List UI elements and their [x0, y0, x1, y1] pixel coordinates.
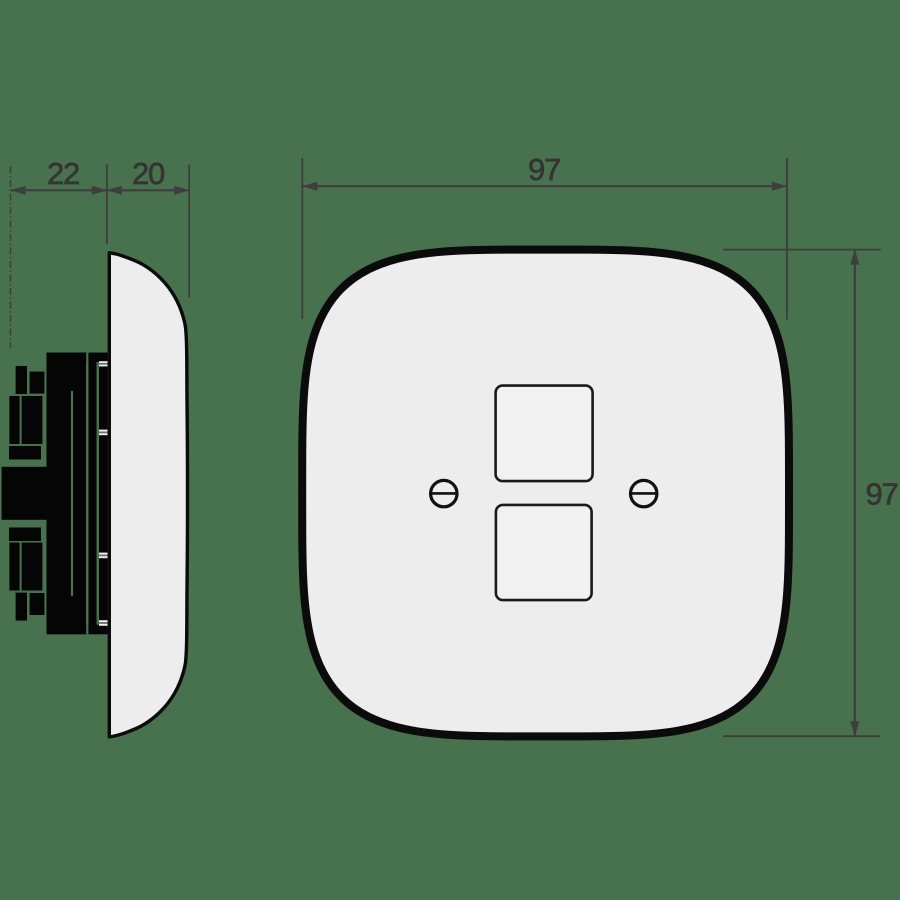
svg-text:22: 22 — [47, 156, 79, 191]
svg-text:20: 20 — [132, 156, 165, 191]
svg-text:97: 97 — [865, 477, 897, 512]
svg-text:97: 97 — [528, 152, 560, 187]
